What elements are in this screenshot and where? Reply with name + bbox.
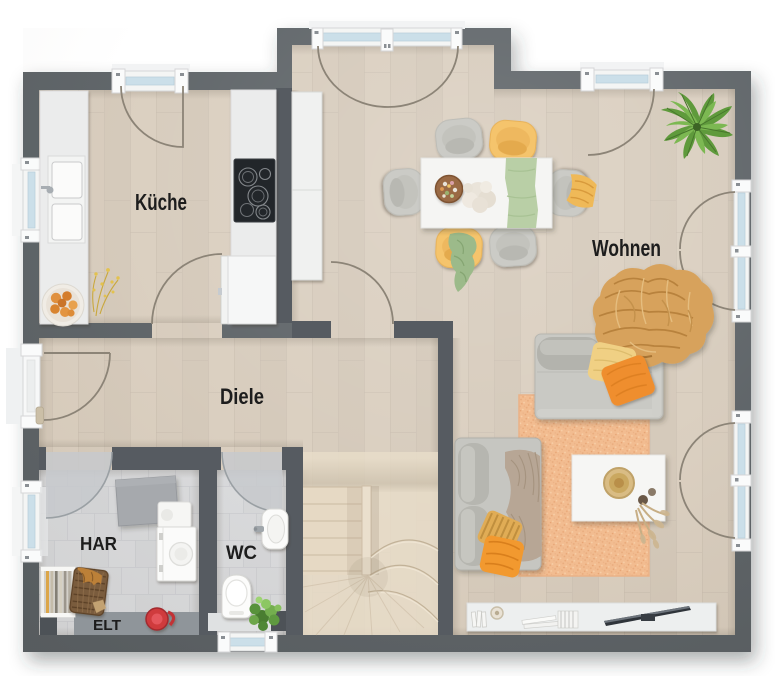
svg-text:ELT: ELT: [93, 617, 121, 634]
svg-text:HAR: HAR: [80, 533, 117, 554]
svg-text:Diele: Diele: [220, 384, 264, 409]
svg-text:Wohnen: Wohnen: [592, 235, 661, 261]
svg-text:WC: WC: [226, 542, 257, 564]
svg-text:Küche: Küche: [135, 189, 187, 215]
